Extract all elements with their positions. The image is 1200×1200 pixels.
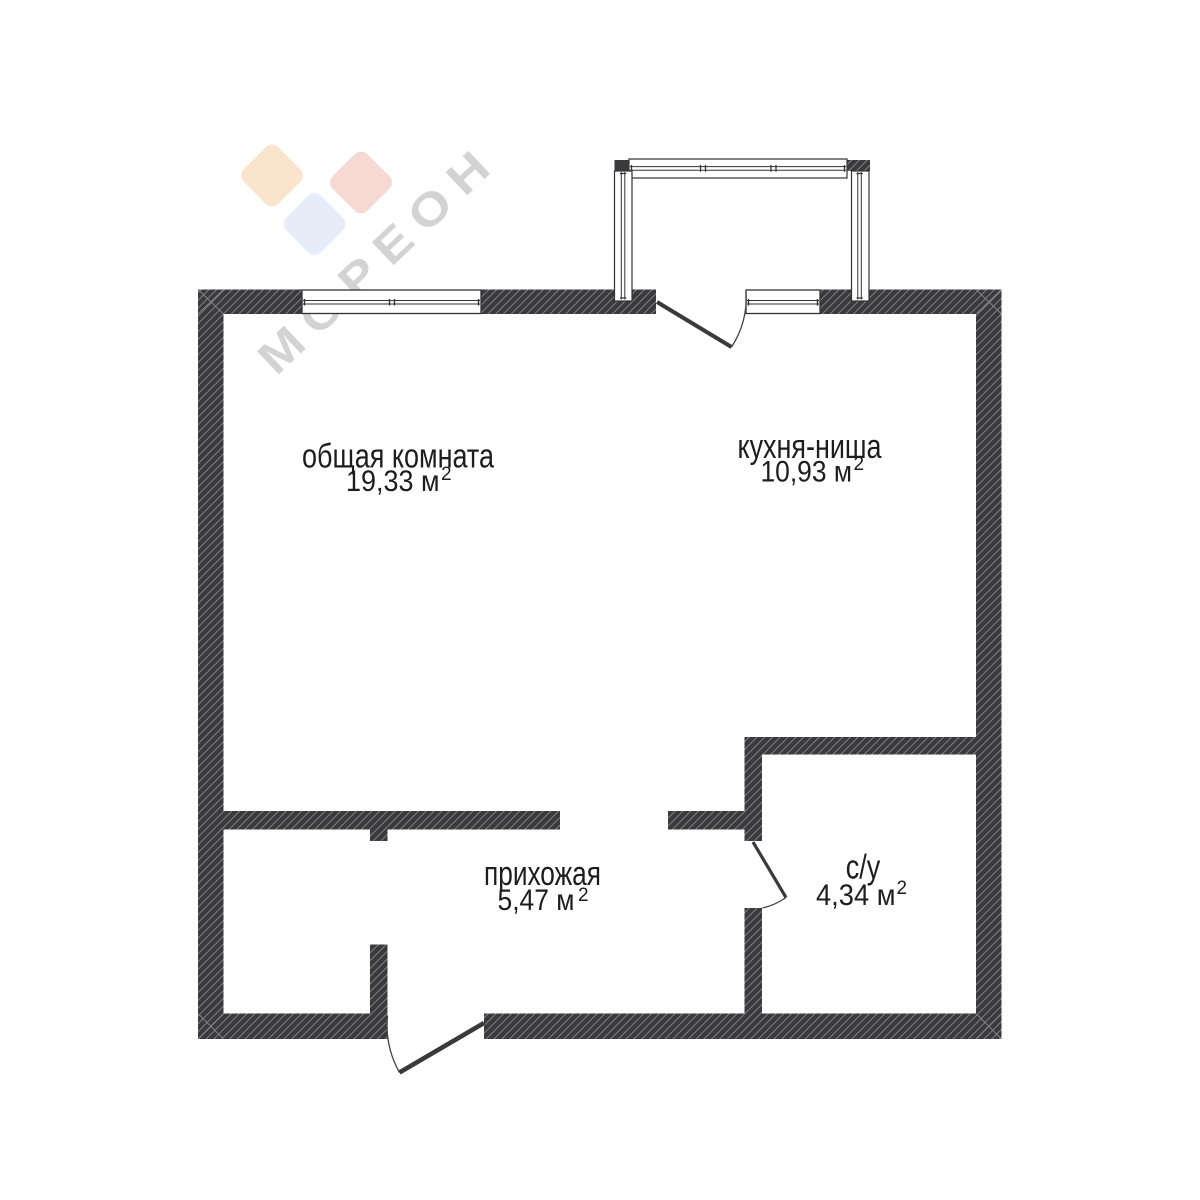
- svg-text:19,33 м: 19,33 м: [346, 465, 440, 498]
- svg-text:2: 2: [854, 454, 865, 475]
- svg-text:5,47 м: 5,47 м: [498, 884, 575, 917]
- svg-text:10,93 м: 10,93 м: [761, 456, 853, 489]
- svg-text:4,34 м: 4,34 м: [816, 879, 896, 912]
- svg-text:2: 2: [578, 885, 589, 906]
- svg-text:2: 2: [441, 464, 452, 485]
- svg-text:2: 2: [897, 878, 908, 899]
